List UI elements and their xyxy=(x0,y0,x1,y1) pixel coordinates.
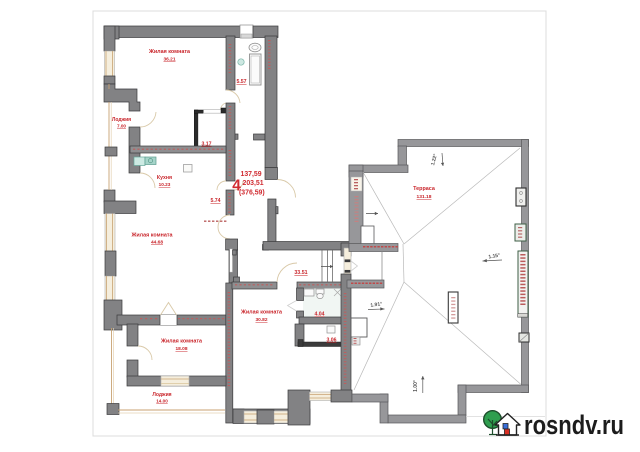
svg-text:Лоджия: Лоджия xyxy=(112,117,131,123)
svg-text:3.06: 3.06 xyxy=(326,338,336,344)
svg-text:Жилая комната: Жилая комната xyxy=(148,49,191,55)
svg-text:131.18: 131.18 xyxy=(417,194,432,200)
svg-text:33.51: 33.51 xyxy=(294,270,307,276)
svg-text:1.00°: 1.00° xyxy=(413,380,419,392)
svg-text:rosndv.ru: rosndv.ru xyxy=(524,410,624,440)
svg-text:30.82: 30.82 xyxy=(255,317,267,323)
svg-text:3.17: 3.17 xyxy=(201,142,211,148)
svg-text:203,51: 203,51 xyxy=(243,180,264,187)
svg-text:Кухня: Кухня xyxy=(157,175,172,181)
svg-text:5.57: 5.57 xyxy=(236,79,246,85)
svg-text:18.08: 18.08 xyxy=(175,346,187,352)
svg-text:Жилая комната: Жилая комната xyxy=(240,310,283,316)
svg-text:(376,59): (376,59) xyxy=(239,190,265,197)
svg-text:137,59: 137,59 xyxy=(241,171,262,178)
svg-text:36.21: 36.21 xyxy=(163,57,175,63)
svg-text:4.04: 4.04 xyxy=(314,312,324,318)
svg-text:44.68: 44.68 xyxy=(151,240,163,246)
svg-text:5.74: 5.74 xyxy=(210,198,220,204)
svg-text:7.00: 7.00 xyxy=(117,124,126,129)
svg-text:Жилая комната: Жилая комната xyxy=(131,233,174,239)
svg-text:Терраса: Терраса xyxy=(413,186,436,192)
svg-text:Лоджия: Лоджия xyxy=(152,392,171,398)
svg-text:Жилая комната: Жилая комната xyxy=(160,339,203,345)
svg-text:14.00: 14.00 xyxy=(156,399,168,404)
svg-text:10.23: 10.23 xyxy=(159,182,171,187)
